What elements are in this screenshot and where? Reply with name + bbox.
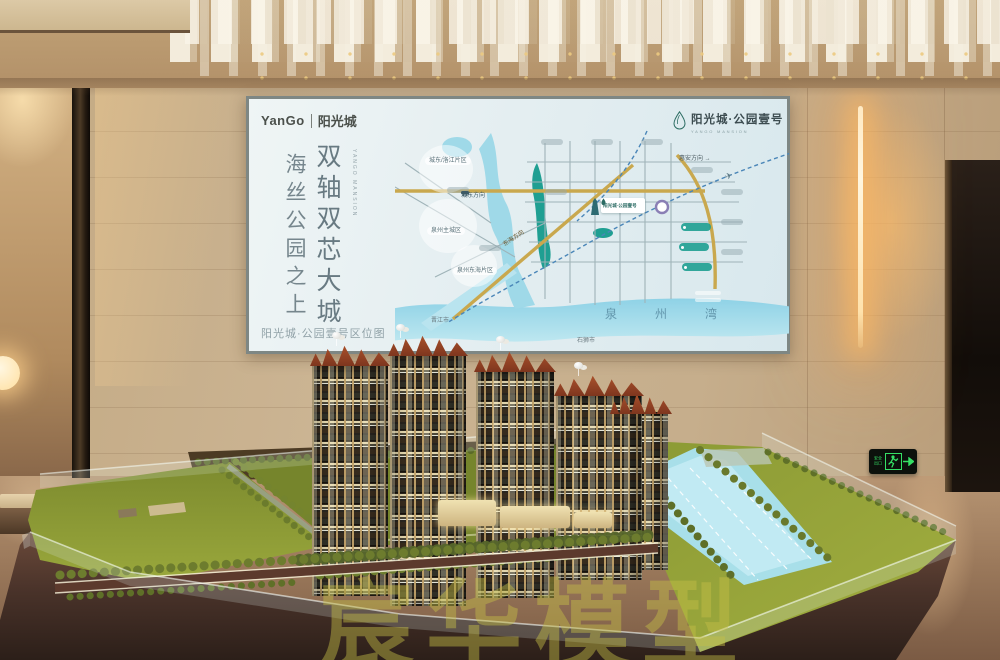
district-label: 泉州主城区 (427, 227, 465, 235)
train-icon (461, 190, 470, 196)
brand-divider (311, 114, 312, 128)
billboard-caption: 阳光城·公园壹号区位图 (261, 325, 386, 341)
illuminated-billboard: YanGo 阳光城 海丝公园之上 双轴双芯大城 YANGO MANSION 阳光… (246, 96, 790, 354)
balloon-marker (574, 362, 583, 369)
ceiling-hanging-panels (185, 0, 1000, 44)
district-label: 泉州东海片区 (453, 267, 497, 275)
bay-label: 泉州湾 (605, 305, 755, 322)
map-park-small (593, 228, 613, 238)
brand-latin: YanGo (261, 113, 305, 128)
watermark-text: 宸华模型 (318, 548, 750, 660)
project-marker: 阳光城·公园壹号 (601, 198, 645, 213)
showroom-scene: 安全出口 YanGo 阳光城 海丝公园之上 双轴双芯大城 YANGO MANSI… (0, 0, 1000, 660)
brand-logo-left: YanGo 阳光城 (261, 111, 357, 130)
marker-drop-icon (601, 198, 606, 206)
map-park-strip (532, 163, 550, 269)
city-label: 石狮市 (577, 335, 595, 344)
park-label-pill (679, 243, 709, 251)
direction-label-chengdong: 城东方向 (461, 190, 485, 199)
recess-glow (0, 86, 74, 226)
road-label-pill (591, 139, 613, 145)
road-label-pill (545, 189, 567, 195)
park-label-pill (682, 263, 712, 271)
road-label-pill (691, 167, 713, 173)
balloon-marker (332, 332, 341, 339)
headline-primary: 双轴双芯大城 (309, 143, 345, 329)
city-label: 晋江市 (431, 315, 449, 324)
road-label-pill (479, 245, 501, 251)
ceiling-cove (0, 0, 190, 33)
wall-glow (95, 86, 255, 386)
direction-label-huian: 惠安方向 → (679, 153, 711, 162)
ceiling-shadow (0, 78, 1000, 96)
glass-railing-corner (22, 532, 30, 549)
map-highlight-pads (695, 291, 721, 302)
road-label-pill (721, 249, 743, 255)
headline-latin: YANGO MANSION (351, 149, 357, 217)
district-bubble (451, 245, 497, 287)
linear-wall-lamp (858, 106, 863, 348)
road-label-pill (721, 219, 743, 225)
brand-cn: 阳光城 (318, 111, 357, 130)
road-label-pill (541, 139, 563, 145)
project-marker-text: 阳光城·公园壹号 (603, 203, 637, 209)
balloon-marker (396, 324, 405, 331)
map-roundabout (656, 201, 668, 213)
headline-secondary: 海丝公园之上 (279, 153, 309, 321)
project-logo-cn: 阳光城·公园壹号 (691, 111, 783, 127)
park-label-pill (681, 223, 711, 231)
location-map: 城东/洛江片区 泉州主城区 泉州东海片区 晋江市 石狮市 城东方向 东海方向 惠… (395, 127, 789, 353)
district-bubble (419, 145, 473, 193)
road-label-pill (721, 189, 743, 195)
district-label: 城东/洛江片区 (425, 157, 471, 165)
road-label-pill (641, 139, 663, 145)
balloon-marker (496, 336, 505, 343)
